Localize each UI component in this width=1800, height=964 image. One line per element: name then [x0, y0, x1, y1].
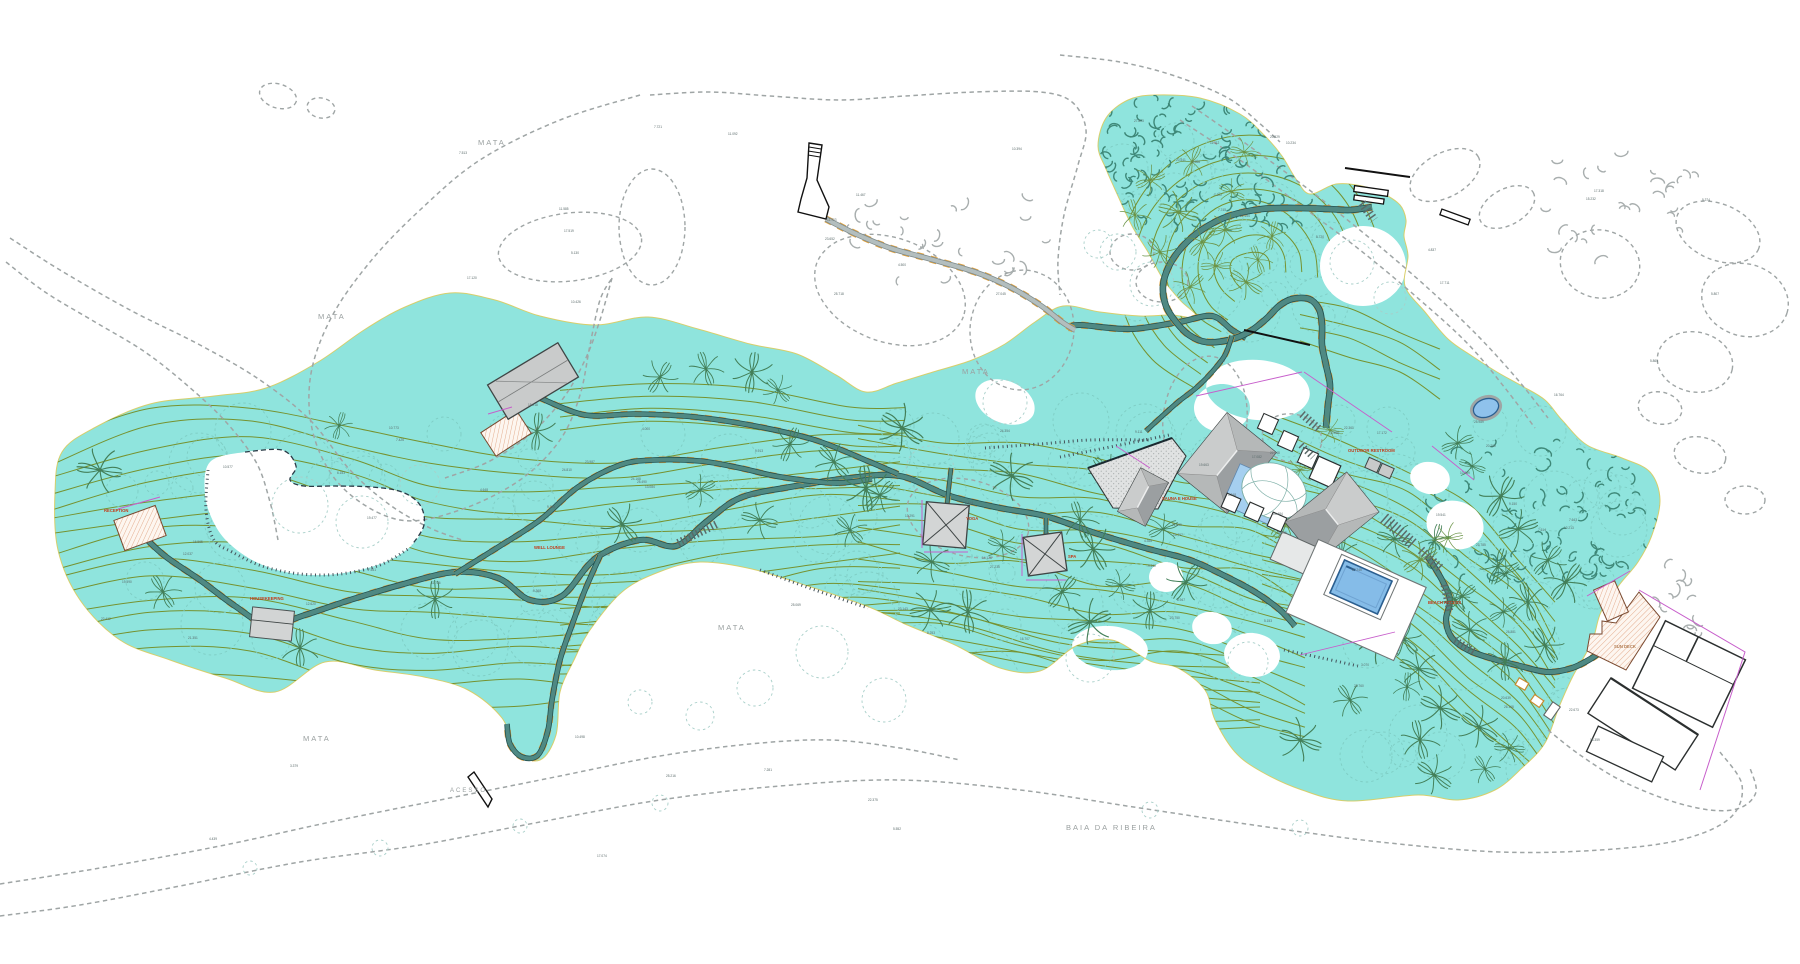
svg-text:16.565: 16.565	[193, 540, 203, 544]
svg-text:6.414: 6.414	[965, 501, 973, 505]
svg-text:5.807: 5.807	[1711, 292, 1719, 296]
svg-text:BAIA DA RIBEIRA: BAIA DA RIBEIRA	[1066, 823, 1157, 832]
svg-text:17.318: 17.318	[1594, 189, 1604, 193]
svg-text:OUTDOOR RESTROOM: OUTDOOR RESTROOM	[1348, 448, 1395, 453]
svg-text:25.069: 25.069	[791, 603, 801, 607]
svg-text:27.045: 27.045	[996, 292, 1006, 296]
svg-text:17.172: 17.172	[1377, 431, 1387, 435]
svg-text:4.358: 4.358	[1144, 539, 1152, 543]
svg-text:25.989: 25.989	[1474, 420, 1484, 424]
svg-text:4.837: 4.837	[1428, 248, 1436, 252]
svg-text:23.143: 23.143	[898, 607, 908, 611]
svg-text:14.126: 14.126	[982, 556, 992, 560]
svg-text:17.120: 17.120	[467, 276, 477, 280]
svg-text:10.577: 10.577	[223, 465, 233, 469]
svg-text:22.154: 22.154	[1240, 214, 1250, 218]
svg-text:SPA: SPA	[1068, 554, 1076, 559]
svg-text:5.130: 5.130	[571, 251, 579, 255]
svg-text:9.913: 9.913	[755, 449, 763, 453]
svg-text:9.150: 9.150	[1509, 502, 1517, 506]
svg-text:5.153: 5.153	[1264, 619, 1272, 623]
svg-text:25.718: 25.718	[834, 292, 844, 296]
svg-text:9.111: 9.111	[1135, 430, 1143, 434]
svg-text:27.245: 27.245	[1352, 568, 1362, 572]
svg-text:5.374: 5.374	[1702, 198, 1710, 202]
svg-text:5.248: 5.248	[1228, 493, 1236, 497]
svg-text:15.232: 15.232	[1586, 197, 1596, 201]
svg-text:3.379: 3.379	[290, 764, 298, 768]
svg-text:BEACH ACCESS: BEACH ACCESS	[1428, 600, 1462, 605]
svg-text:12.037: 12.037	[183, 552, 193, 556]
svg-text:11.467: 11.467	[856, 193, 866, 197]
svg-text:MATA: MATA	[962, 367, 990, 376]
svg-text:4.439: 4.439	[209, 837, 217, 841]
svg-text:7.721: 7.721	[654, 125, 662, 129]
svg-text:YOGA: YOGA	[966, 516, 978, 521]
svg-text:13.291: 13.291	[905, 514, 915, 518]
svg-text:17.074: 17.074	[597, 854, 607, 858]
svg-text:23.987: 23.987	[585, 460, 595, 464]
svg-text:12.620: 12.620	[306, 602, 316, 606]
svg-text:23.652: 23.652	[825, 237, 835, 241]
svg-text:21.689: 21.689	[1172, 523, 1182, 527]
svg-text:7.541: 7.541	[368, 568, 376, 572]
svg-text:19.541: 19.541	[1436, 513, 1446, 517]
svg-text:3.070: 3.070	[1361, 663, 1369, 667]
svg-text:20.929: 20.929	[1270, 135, 1280, 139]
svg-text:7.513: 7.513	[459, 151, 467, 155]
svg-text:17.082: 17.082	[1252, 455, 1262, 459]
svg-text:7.614: 7.614	[1538, 528, 1546, 532]
svg-text:5.720: 5.720	[1316, 235, 1324, 239]
svg-text:10.770: 10.770	[600, 553, 610, 557]
svg-text:10.489: 10.489	[1460, 471, 1470, 475]
svg-text:15.359: 15.359	[1590, 738, 1600, 742]
svg-text:26.255: 26.255	[1277, 531, 1287, 535]
svg-text:17.711: 17.711	[1440, 281, 1450, 285]
svg-text:4.508: 4.508	[1192, 160, 1200, 164]
svg-text:22.048: 22.048	[1270, 451, 1280, 455]
svg-text:7.426: 7.426	[396, 438, 404, 442]
svg-text:22.375: 22.375	[868, 798, 878, 802]
svg-text:WELL LOUNGE: WELL LOUNGE	[534, 545, 565, 550]
svg-text:10.498: 10.498	[575, 735, 585, 739]
svg-text:10.484: 10.484	[1273, 512, 1283, 516]
svg-text:19.663: 19.663	[1199, 463, 1209, 467]
svg-text:8.947: 8.947	[1177, 598, 1185, 602]
svg-text:10.773: 10.773	[389, 426, 399, 430]
svg-text:7.643: 7.643	[1569, 518, 1577, 522]
svg-text:19.569: 19.569	[747, 494, 757, 498]
svg-text:24.168: 24.168	[631, 477, 641, 481]
svg-text:10.234: 10.234	[1286, 141, 1296, 145]
svg-text:SAUNA E HOUSE: SAUNA E HOUSE	[1162, 496, 1197, 501]
svg-text:20.639: 20.639	[1501, 696, 1511, 700]
svg-text:22.673: 22.673	[1569, 708, 1579, 712]
svg-text:11.092: 11.092	[728, 132, 738, 136]
svg-text:20.200: 20.200	[1486, 444, 1496, 448]
svg-text:11.585: 11.585	[559, 207, 569, 211]
svg-text:8.253: 8.253	[927, 631, 935, 635]
svg-text:26.168: 26.168	[1504, 705, 1514, 709]
svg-text:9.368: 9.368	[533, 589, 541, 593]
svg-text:5.552: 5.552	[893, 827, 901, 831]
svg-text:15.797: 15.797	[1173, 533, 1183, 537]
svg-text:10.394: 10.394	[1012, 147, 1022, 151]
svg-text:24.810: 24.810	[562, 468, 572, 472]
svg-text:13.084: 13.084	[645, 485, 655, 489]
svg-text:SUN DECK: SUN DECK	[1614, 644, 1636, 649]
svg-text:MATA: MATA	[718, 623, 746, 632]
svg-text:25.216: 25.216	[666, 774, 676, 778]
svg-text:9.156: 9.156	[547, 505, 555, 509]
svg-text:11.726: 11.726	[431, 581, 441, 585]
svg-text:9.242: 9.242	[1148, 564, 1156, 568]
svg-text:23.785: 23.785	[1476, 543, 1486, 547]
svg-text:13.988: 13.988	[1329, 431, 1339, 435]
svg-text:12.213: 12.213	[1564, 526, 1574, 530]
svg-text:22.412: 22.412	[101, 617, 111, 621]
svg-text:24.354: 24.354	[1000, 429, 1010, 433]
svg-text:20.541: 20.541	[1176, 158, 1186, 162]
svg-text:22.361: 22.361	[1344, 426, 1354, 430]
svg-text:27.235: 27.235	[990, 565, 1000, 569]
svg-text:7.202: 7.202	[1214, 193, 1222, 197]
svg-text:19.590: 19.590	[122, 580, 132, 584]
svg-text:RECEPTION: RECEPTION	[104, 508, 128, 513]
svg-text:21.351: 21.351	[188, 636, 198, 640]
svg-text:7.745: 7.745	[1218, 208, 1226, 212]
svg-text:MATA: MATA	[478, 138, 506, 147]
svg-text:4.648: 4.648	[480, 488, 488, 492]
svg-text:27.803: 27.803	[1134, 119, 1144, 123]
svg-text:16.707: 16.707	[1020, 637, 1030, 641]
svg-text:26.381: 26.381	[1506, 630, 1516, 634]
svg-text:HOUSEKEEPING: HOUSEKEEPING	[250, 596, 284, 601]
svg-text:5.865: 5.865	[1650, 359, 1658, 363]
svg-text:11.112: 11.112	[1210, 141, 1220, 145]
svg-text:17.519: 17.519	[564, 229, 574, 233]
svg-text:19.477: 19.477	[367, 516, 377, 520]
svg-text:10.426: 10.426	[571, 300, 581, 304]
svg-text:23.760: 23.760	[1354, 684, 1364, 688]
svg-text:MATA: MATA	[303, 734, 331, 743]
svg-text:4.500: 4.500	[898, 263, 906, 267]
svg-text:15.018: 15.018	[528, 403, 538, 407]
svg-text:11.703: 11.703	[827, 218, 837, 222]
svg-text:MATA: MATA	[318, 312, 346, 321]
svg-text:7.281: 7.281	[764, 768, 772, 772]
svg-text:16.764: 16.764	[1554, 393, 1564, 397]
svg-text:6.153: 6.153	[337, 471, 345, 475]
svg-text:23.750: 23.750	[1170, 616, 1180, 620]
svg-text:ACESSO: ACESSO	[450, 788, 487, 794]
svg-text:4.000: 4.000	[642, 427, 650, 431]
